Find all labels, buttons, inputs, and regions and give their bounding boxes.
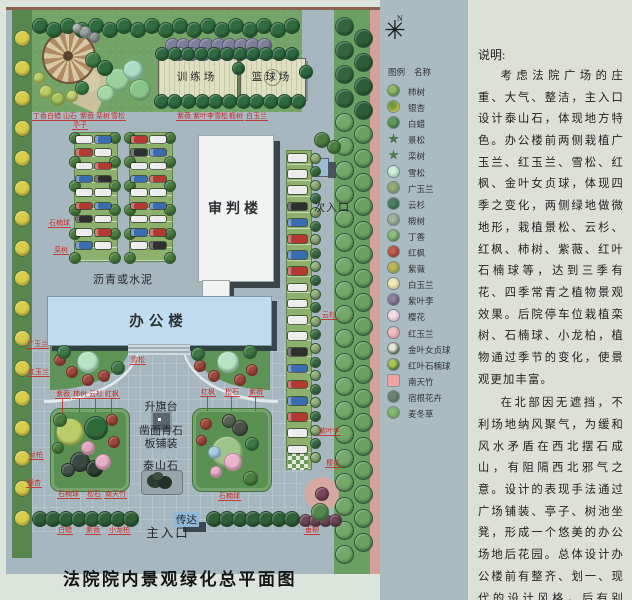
car-icon [288,429,307,437]
tree-icon [311,330,320,339]
tree-icon [124,61,142,79]
legend-label: 丁香 [408,231,425,243]
legend-item: 樱花 [380,309,468,323]
tree-icon [336,402,353,419]
tree-icon [82,442,94,454]
tree-icon [221,48,233,60]
tree-icon [355,366,372,383]
tree-icon [125,253,135,263]
plant-annotation: 松石 [224,388,240,397]
tree-icon [355,438,372,455]
tree-icon [70,253,80,263]
legend-label: 金叶女贞球 [408,344,451,356]
plant-annotation: 红枫 [104,390,120,399]
tree-icon [110,229,120,239]
tree-icon [311,412,320,421]
tree-icon [15,211,30,226]
plan-north-boundary [6,7,380,10]
legend-item: 柿树 [380,84,468,98]
tree-icon [336,474,353,491]
plant-annotation: 栾树 [53,246,69,255]
tree-icon [15,301,30,316]
legend-label: 栾树 [408,150,425,162]
tree-icon [355,246,372,263]
legend-item: 紫薇 [380,261,468,275]
plant-annotation: 银杏 [26,479,42,488]
plant-annotation: 龙柏 [28,451,44,460]
car-icon [131,216,147,223]
car-icon [150,189,166,196]
legend-item: 金叶女贞球 [380,342,468,356]
plant-annotation: 柿树 [72,390,88,399]
tree-icon [311,167,320,176]
tree-icon [355,198,372,215]
legend-label: 红枫 [408,247,425,259]
legend-swatch-icon [388,294,399,305]
plant-annotation: 紫薇 [79,112,95,121]
car-icon [150,203,166,210]
legend-swatch-icon [388,85,399,96]
legend-swatch-icon [388,310,399,321]
tree-icon [209,95,222,108]
tree-icon [211,467,221,477]
legend-label: 景松 [408,134,425,146]
legend-swatch-icon [388,327,399,338]
plant-annotation: 云杉 [321,311,337,320]
tree-icon [15,31,30,46]
car-icon [288,203,307,211]
tree-icon [250,95,263,108]
tree-icon [311,439,320,448]
tree-icon [355,102,372,119]
tree-icon [336,66,353,83]
car-icon [95,136,111,143]
tree-icon [109,437,119,447]
tree-icon [311,317,320,326]
tree-icon [247,48,259,60]
car-icon [288,348,307,356]
tree-icon [246,438,258,450]
tree-icon [355,150,372,167]
plant-annotation: 紫叶李 [318,427,341,436]
tree-icon [336,546,353,563]
tree-icon [173,19,187,33]
paving-note-label: 凿面青石板铺装 [134,425,188,451]
tree-icon [195,361,205,371]
legend-label: 红玉兰 [408,328,434,340]
tree-icon [355,294,372,311]
tree-icon [209,447,220,458]
legend-item: 白玉兰 [380,277,468,291]
east-sidewalk-strip [370,10,380,574]
legend-item: 云杉 [380,197,468,211]
plant-annotation: 小龙柏 [108,526,131,535]
tree-icon [311,235,320,244]
legend-item: 红叶石楠球 [380,358,468,372]
tree-icon [15,391,30,406]
tree-icon [285,19,299,33]
car-icon [288,397,307,405]
tree-icon [311,154,320,163]
tree-icon [355,270,372,287]
car-icon [288,300,307,308]
plant-annotation: 垂柳 [304,526,320,535]
tree-icon [229,19,243,33]
tree-icon [182,95,195,108]
tree-icon [192,348,204,360]
car-icon [76,163,92,170]
legend-swatch-icon [388,230,399,241]
car-icon [95,242,111,249]
tree-icon [15,241,30,256]
tree-icon [355,126,372,143]
landscape-plan-page: 丁香白蜡山石紫薇栾树雪松亭子紫薇紫叶李雪松椴树白玉兰石楠球栾树广玉兰红玉兰雪松云… [0,0,632,600]
legend-header-name: 名称 [414,66,431,78]
legend-swatch-icon [388,246,399,257]
tree-icon [355,30,372,47]
car-icon [288,284,307,292]
legend-swatch-icon [388,198,399,209]
car-icon [150,229,166,236]
plant-annotation: 石楠球 [48,219,71,228]
tree-icon [52,93,64,105]
car-icon [95,216,111,223]
legend-swatch-icon [388,359,399,370]
plant-annotation: 云杉 [88,390,104,399]
car-icon [76,176,92,183]
legend-swatch-icon [388,375,399,386]
tree-icon [98,61,112,75]
car-icon [131,163,147,170]
tree-icon [355,78,372,95]
car-icon [76,216,92,223]
legend-item: 红玉兰 [380,326,468,340]
plant-annotation: 紫叶李 [192,112,215,121]
tree-icon [110,133,120,143]
car-icon [288,413,307,421]
tree-icon [225,454,241,470]
office-entrance-steps [128,344,190,355]
car-icon [288,381,307,389]
tree-icon [165,229,175,239]
tree-icon [168,95,181,108]
tree-icon [96,455,110,469]
tree-icon [131,23,145,37]
plant-annotation: 南天竹 [104,490,127,499]
legend-item: 红枫 [380,245,468,259]
tree-icon [311,398,320,407]
tree-icon [247,365,257,375]
tree-icon [89,19,103,33]
car-icon [288,186,307,194]
legend-label: 白玉兰 [408,279,434,291]
tree-icon [117,19,131,33]
car-icon [288,332,307,340]
tree-icon [90,33,99,42]
tree-icon [311,371,320,380]
tree-icon [336,258,353,275]
legend-item: 雪松 [380,165,468,179]
plant-annotation: 亭子 [72,121,88,130]
tree-icon [223,95,236,108]
plant-annotation: 石楠球 [57,490,80,499]
tree-icon [145,19,159,33]
stone-blob [153,472,163,480]
legend-label: 宿根花卉 [408,392,442,404]
tree-icon [182,48,194,60]
tree-icon [103,23,117,37]
car-icon [76,242,92,249]
car-icon [131,136,147,143]
tree-icon [107,415,117,425]
tree-icon [336,234,353,251]
pavilion-hub [63,51,73,61]
tree-icon [187,23,201,37]
tree-icon [165,157,175,167]
plant-annotation: 雪松 [130,356,146,365]
tree-icon [80,27,90,37]
tree-icon [315,133,329,147]
secondary-entrance-label: 次入口 [308,199,356,215]
legend-panel: N ✳ 图例 名称 柿树银杏白蜡景松栾树雪松广玉兰云杉椴树丁香红枫紫薇白玉兰紫叶… [380,0,468,600]
notes-panel: 说明: 考虑法院广场的庄重、大气、整洁，主入口设计泰山石，体现地方特色。办公楼前… [468,0,632,600]
flag-platform-label: 升旗台 [136,398,186,414]
tree-icon [355,534,372,551]
tree-icon [33,19,47,33]
car-icon [288,154,307,162]
tree-icon [215,23,229,37]
legend-swatch-icon [388,262,399,273]
tree-icon [336,306,353,323]
tree-icon [155,95,168,108]
notes-heading: 说明: [478,46,505,63]
tree-icon [237,95,250,108]
car-icon [76,203,92,210]
leader-line [111,399,112,413]
tree-icon [235,375,245,385]
legend-swatch-icon [388,343,399,354]
car-icon [288,235,307,243]
tree-icon [355,54,372,71]
tree-icon [355,390,372,407]
plant-annotation: 紫薇 [55,390,71,399]
tree-icon [328,141,340,153]
car-icon [131,203,147,210]
leader-line [207,397,208,411]
legend-swatch-icon [388,214,399,225]
tree-icon [336,42,353,59]
leader-line [95,399,96,413]
tree-icon [355,486,372,503]
plant-annotation: 紫薇 [85,526,101,535]
tree-icon [286,48,298,60]
car-icon [150,163,166,170]
tree-icon [112,362,124,374]
plant-annotation: 紫薇 [176,112,192,121]
legend-label: 广玉兰 [408,183,434,195]
plant-annotation: 白蜡 [57,526,73,535]
legend-label: 紫叶李 [408,295,434,307]
legend-item: 南天竹 [380,374,468,388]
car-icon [288,219,307,227]
tree-icon [260,48,272,60]
car-icon [76,149,92,156]
tree-icon [58,346,70,358]
car-icon [95,229,111,236]
tree-icon [15,511,30,526]
tree-icon [62,464,74,476]
tree-icon [159,23,173,37]
trial-building-label: 审判楼 [198,198,272,218]
tree-icon [110,205,120,215]
reception-label: 传达 [174,512,199,527]
tree-icon [355,342,372,359]
tree-icon [336,90,353,107]
tree-icon [311,222,320,231]
tree-icon [316,488,328,500]
tree-icon [234,48,246,60]
legend-swatch-icon [388,182,399,193]
plant-annotation: 雪松 [110,112,126,121]
car-icon [150,242,166,249]
tree-icon [67,91,77,101]
legend-swatch-icon [388,407,399,418]
tree-icon [209,371,219,381]
car-icon [131,189,147,196]
tree-icon [34,73,44,83]
car-icon [288,251,307,259]
tree-icon [292,95,305,108]
legend-label: 麦冬草 [408,408,434,420]
tree-icon [311,262,320,271]
tree-icon [110,181,120,191]
car-icon [150,136,166,143]
tree-icon [233,421,247,435]
tree-icon [218,352,238,372]
legend-item: 景松 [380,132,468,146]
legend-item: 丁香 [380,229,468,243]
legend-item: 白蜡 [380,116,468,130]
tree-icon [355,414,372,431]
tree-icon [244,346,256,358]
legend-item: 广玉兰 [380,181,468,195]
notes-body: 考虑法院广场的庄重、大气、整洁，主入口设计泰山石，体现地方特色。办公楼前两侧栽植… [478,66,624,600]
east-parking-column [286,150,312,470]
plant-annotation: 紫薇 [248,388,264,397]
car-icon [288,446,307,454]
car-icon [95,176,111,183]
plant-annotation: 雪松 [213,112,229,121]
tree-icon [273,48,285,60]
tree-icon [78,352,98,372]
tree-icon [40,86,52,98]
leader-line [62,399,63,413]
tree-icon [197,436,206,445]
notes-paragraph: 在北部因无遮挡，不利场地纳风聚气，为缓和风水矛盾在西北摆石成山，有阻隔西北邪气之… [478,393,624,600]
tree-icon [76,82,88,94]
car-icon [150,216,166,223]
training-field-label: 训练场 [158,69,236,84]
legend-swatch-icon [388,117,399,128]
legend-swatch-icon [388,101,399,112]
tree-icon [311,290,320,299]
car-icon [288,316,307,324]
legend-swatch-icon [388,391,399,402]
car-icon [131,229,147,236]
tree-icon [98,86,114,102]
tree-icon [311,303,320,312]
tree-icon [201,19,215,33]
leader-line [255,397,256,411]
office-building-label: 办公楼 [47,310,270,331]
legend-item: 宿根花卉 [380,390,468,404]
legend-swatch-icon [388,166,399,177]
plant-annotation: 红枫 [200,388,216,397]
tree-icon [99,371,109,381]
legend-item: 栾树 [380,148,468,162]
plant-annotation: 白玉兰 [245,112,268,121]
asphalt-note-label: 沥青或水泥 [88,271,158,287]
tree-icon [336,498,353,515]
tree-icon [336,114,353,131]
car-icon [76,136,92,143]
legend-label: 雪松 [408,167,425,179]
tree-icon [54,414,66,426]
legend-swatch-icon [388,278,399,289]
tree-icon [311,181,320,190]
plant-annotation: 山石 [62,112,78,121]
secondary-entrance-booth [328,162,336,178]
tree-icon [83,375,93,385]
car-icon [131,242,147,249]
tree-icon [165,205,175,215]
tree-icon [311,358,320,367]
legend-label: 樱花 [408,311,425,323]
car-icon [95,149,111,156]
tree-icon [336,18,353,35]
plant-annotation: 松石 [86,490,102,499]
legend-swatch-icon [388,149,399,160]
tree-icon [195,48,207,60]
car-icon [95,203,111,210]
tree-icon [264,95,277,108]
car-icon [150,149,166,156]
tree-icon [156,48,168,60]
plant-annotation: 樱花 [325,459,341,468]
car-icon [150,176,166,183]
tree-icon [311,453,320,462]
tree-icon [311,385,320,394]
tree-icon [165,181,175,191]
tree-icon [336,354,353,371]
tree-icon [336,378,353,395]
tree-icon [47,23,61,37]
tree-icon [336,282,353,299]
plan-title: 法院院内景观绿化总平面图 [40,565,320,590]
plant-annotation: 栾树 [95,112,111,121]
tree-icon [355,174,372,191]
basketball-court-label: 篮球场 [240,69,304,84]
tree-icon [15,61,30,76]
tree-icon [330,515,341,526]
legend-item: 紫叶李 [380,293,468,307]
legend-item: 银杏 [380,100,468,114]
paver-checker [288,452,308,470]
tree-icon [223,415,235,427]
tree-icon [110,157,120,167]
car-icon [288,365,307,373]
tree-icon [355,222,372,239]
